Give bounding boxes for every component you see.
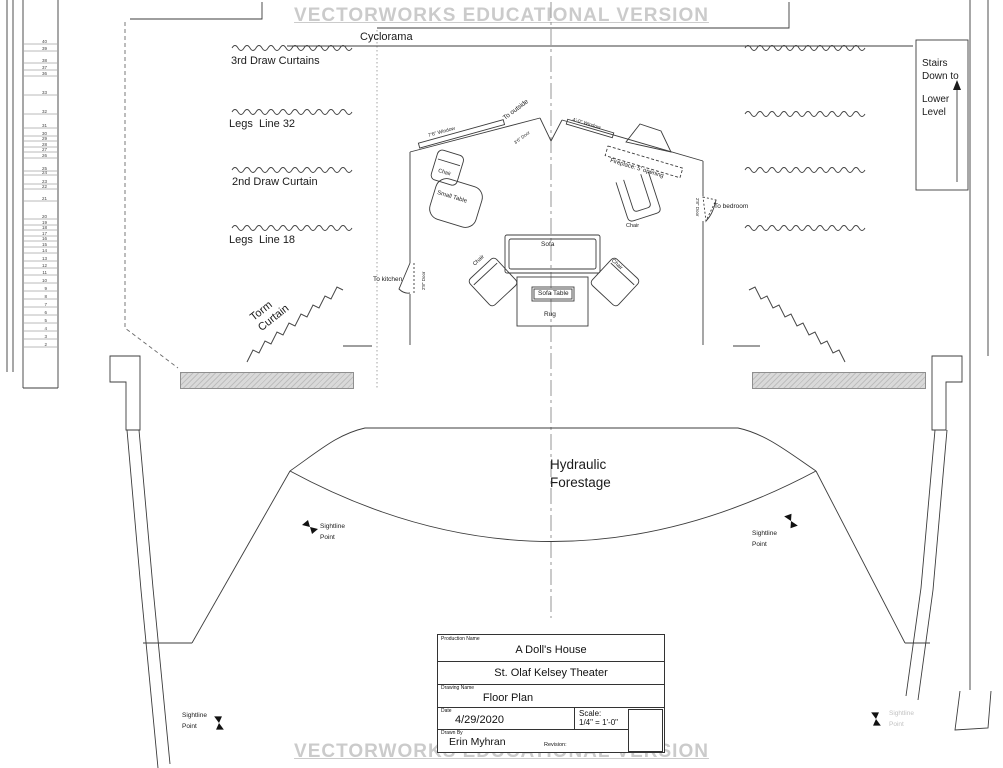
second-draw-curtain-label: 2nd Draw Curtain <box>232 176 318 189</box>
fly-line-number: 33 <box>42 90 48 95</box>
sightline-marker-bottom-left <box>208 712 229 733</box>
fly-line-number: 24 <box>42 170 48 175</box>
revision-label: Revision: <box>544 742 567 748</box>
fly-line-number: 5 <box>44 318 47 323</box>
proscenium-right <box>932 356 962 430</box>
sightline-marker-bottom-right <box>865 708 886 729</box>
cyclorama-label: Cyclorama <box>360 31 413 44</box>
house-wall-right-inner <box>906 430 935 696</box>
upstage-wall-left <box>130 2 262 19</box>
sightline-marker-right <box>781 512 801 531</box>
sightline-word-1: Sightline <box>889 710 914 717</box>
curtain-wave <box>745 112 865 117</box>
fly-line-number: 36 <box>42 71 48 76</box>
fly-line-number: 20 <box>42 214 48 219</box>
fly-line-number: 16 <box>42 236 48 241</box>
sightline-label-bottom-left: SightlinePoint <box>182 710 207 732</box>
legs-line-32-label: Legs Line 32 <box>229 118 295 131</box>
fly-line-number: 39 <box>42 46 48 51</box>
fly-line-number: 40 <box>42 39 48 44</box>
door-kitchen-size-label: 2'8" Door <box>421 272 426 290</box>
fly-line-number: 3 <box>44 334 47 339</box>
curtain-wave <box>745 226 865 231</box>
torm-zigzag <box>749 287 845 362</box>
curtain-wave-lines <box>232 46 865 231</box>
rug <box>517 277 588 326</box>
house-corner-right <box>955 691 991 730</box>
curtain-wave <box>745 168 865 173</box>
date-value: 4/29/2020 <box>455 714 504 726</box>
fireplace-chimney <box>626 124 671 152</box>
date-label: Date <box>441 708 452 714</box>
proscenium-hatch-left <box>180 372 354 389</box>
drawing-name-label: Drawing Name <box>441 685 474 691</box>
upstage-wall-right <box>377 2 789 28</box>
stairs-label-4: Level <box>922 107 946 119</box>
drawn-by-value: Erin Myhran <box>449 736 506 748</box>
fly-line-number: 37 <box>42 65 48 70</box>
fly-line-number: 7 <box>44 302 47 307</box>
production-name-label: Production Name <box>441 636 480 642</box>
curtain-wave <box>232 110 352 115</box>
scale-label: Scale: <box>579 709 601 718</box>
fly-line-number: 22 <box>42 184 48 189</box>
armchair-label: Chair <box>626 223 639 229</box>
fly-rail-line-set: 4039383736333231302928272625242322212019… <box>24 39 57 347</box>
sightline-marker-left <box>302 520 318 534</box>
forestage-word-1: Hydraulic <box>550 457 606 472</box>
proscenium-hatch-right <box>752 372 926 389</box>
stairs-label-3: Lower <box>922 94 949 106</box>
sightline-label-bottom-right: SightlinePoint <box>889 708 914 730</box>
house-wall-left-inner <box>139 430 170 764</box>
theater-name: St. Olaf Kelsey Theater <box>438 667 664 679</box>
hydraulic-forestage-label: HydraulicForestage <box>550 456 611 492</box>
sightline-word-2: Point <box>889 721 904 728</box>
fly-line-number: 26 <box>42 153 48 158</box>
door-kitchen-label: To kitchen <box>373 276 402 283</box>
fly-line-number: 27 <box>42 147 48 152</box>
sightline-word-2: Point <box>752 541 767 548</box>
legs-line-18-label: Legs Line 18 <box>229 234 295 247</box>
fly-line-number: 18 <box>42 225 48 230</box>
sofa-label: Sofa <box>541 241 554 248</box>
fly-line-number: 9 <box>44 286 47 291</box>
sightline-label-left: SightlinePoint <box>320 521 345 543</box>
chair-upper-left <box>430 149 465 187</box>
fly-line-number: 6 <box>44 310 47 315</box>
fly-line-number: 2 <box>44 342 47 347</box>
scale-value: 1/4" = 1'-0" <box>579 718 618 727</box>
fly-line-number: 12 <box>42 263 48 268</box>
door-bedroom-label: To bedroom <box>714 203 748 210</box>
title-row-divider <box>438 729 628 730</box>
fly-line-number: 31 <box>42 123 48 128</box>
forestage-word-2: Forestage <box>550 475 611 490</box>
fly-line-number: 15 <box>42 242 48 247</box>
house-wall-right-outer <box>918 430 947 700</box>
sightline-word-1: Sightline <box>320 523 345 530</box>
fly-line-number: 29 <box>42 136 48 141</box>
fly-line-number: 21 <box>42 196 48 201</box>
sightline-word-2: Point <box>182 723 197 730</box>
proscenium-left <box>110 356 140 430</box>
drawing-name: Floor Plan <box>438 692 578 704</box>
fly-line-number: 10 <box>42 278 48 283</box>
sightline-word-1: Sightline <box>752 530 777 537</box>
sofa-table-label: Sofa Table <box>538 290 569 297</box>
forestage-side-left <box>192 471 290 643</box>
door-bedroom-size-label: 2'8" Door <box>695 198 700 216</box>
fly-line-number: 38 <box>42 58 48 63</box>
rug-label: Rug <box>544 311 556 318</box>
sightline-word-2: Point <box>320 534 335 541</box>
fire-curtain-line <box>125 22 178 368</box>
stairs-label-2: Down to <box>922 71 959 83</box>
title-stamp-box <box>628 709 663 752</box>
torm-curtain-zigzags <box>247 287 845 362</box>
floor-plan-sheet: { "watermark": {"text": "VECTORWORKS EDU… <box>0 0 1003 768</box>
title-block: Production Name A Doll's House St. Olaf … <box>437 634 665 753</box>
fly-line-number: 4 <box>44 326 47 331</box>
third-draw-curtains-label: 3rd Draw Curtains <box>231 55 320 68</box>
fly-line-number: 8 <box>44 294 47 299</box>
stairs-label-1: Stairs <box>922 58 948 70</box>
sightline-label-right: SightlinePoint <box>752 528 777 550</box>
forestage-side-right <box>816 471 905 643</box>
armchair <box>616 172 661 222</box>
scale-cell-divider <box>574 707 575 729</box>
curtain-wave <box>232 168 352 173</box>
fly-line-number: 32 <box>42 109 48 114</box>
fly-line-number: 13 <box>42 256 48 261</box>
house-wall-left-outer <box>127 430 158 768</box>
production-name: A Doll's House <box>438 644 664 656</box>
fly-line-number: 11 <box>42 270 47 275</box>
curtain-wave <box>232 226 352 231</box>
fly-line-number: 14 <box>42 248 48 253</box>
sightline-word-1: Sightline <box>182 712 207 719</box>
